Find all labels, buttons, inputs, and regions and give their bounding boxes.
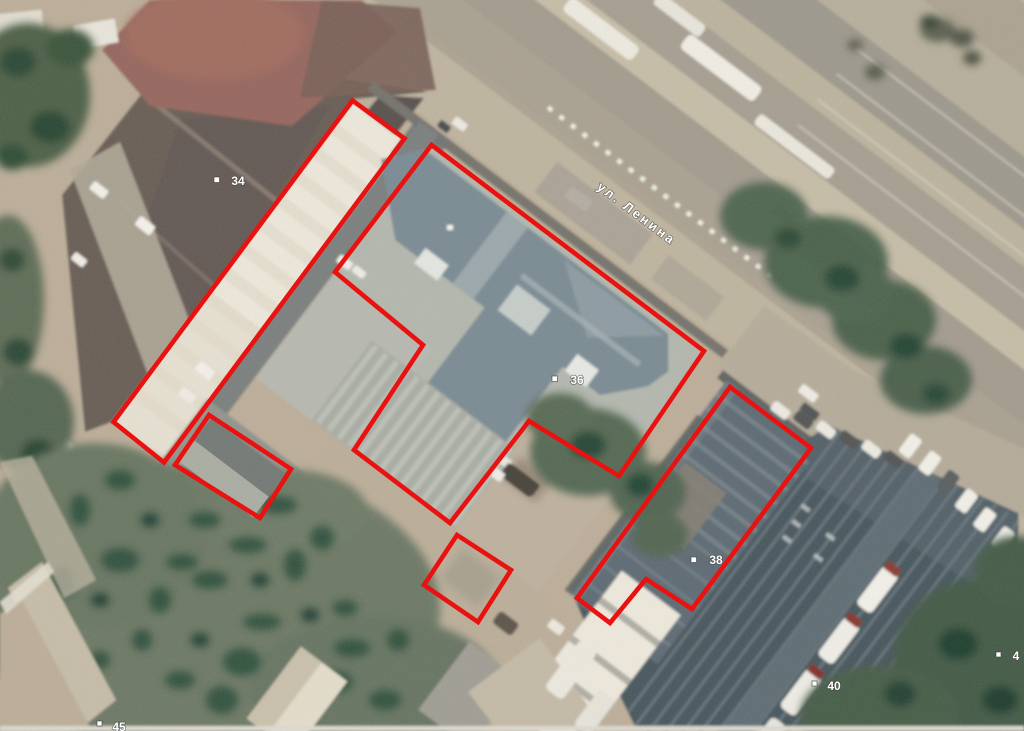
svg-text:34: 34 (231, 174, 245, 188)
svg-text:4: 4 (1013, 649, 1020, 663)
svg-text:45: 45 (112, 720, 126, 731)
svg-text:40: 40 (827, 679, 841, 693)
svg-text:38: 38 (709, 553, 723, 567)
svg-text:36: 36 (570, 373, 584, 387)
